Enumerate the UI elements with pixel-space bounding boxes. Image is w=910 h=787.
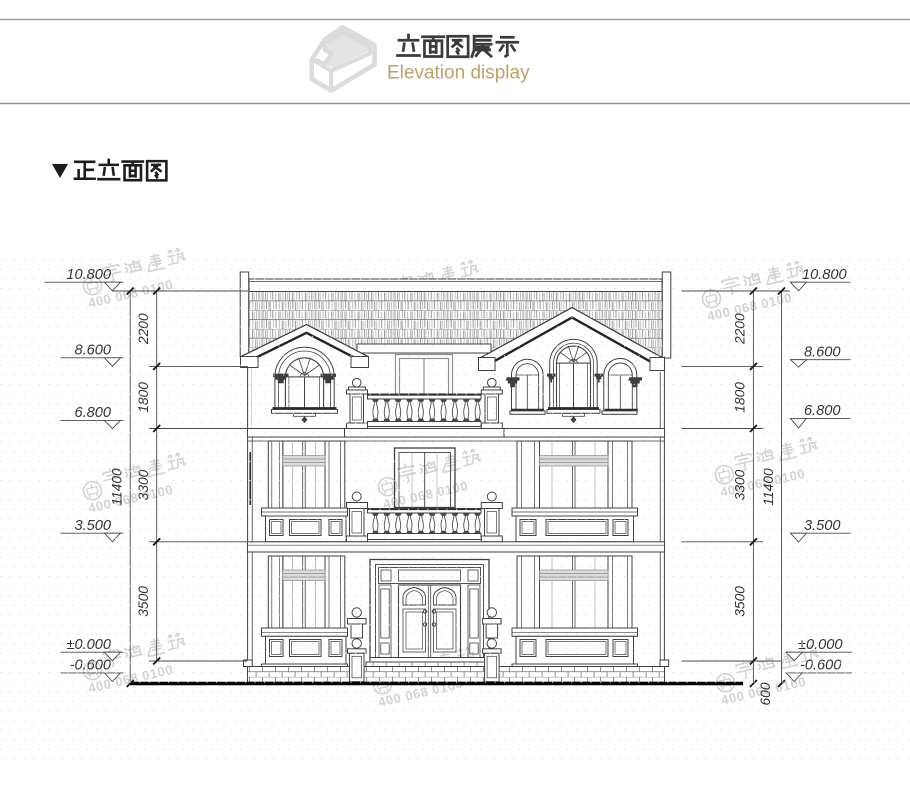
svg-text:Elevation display: Elevation display	[387, 63, 530, 84]
